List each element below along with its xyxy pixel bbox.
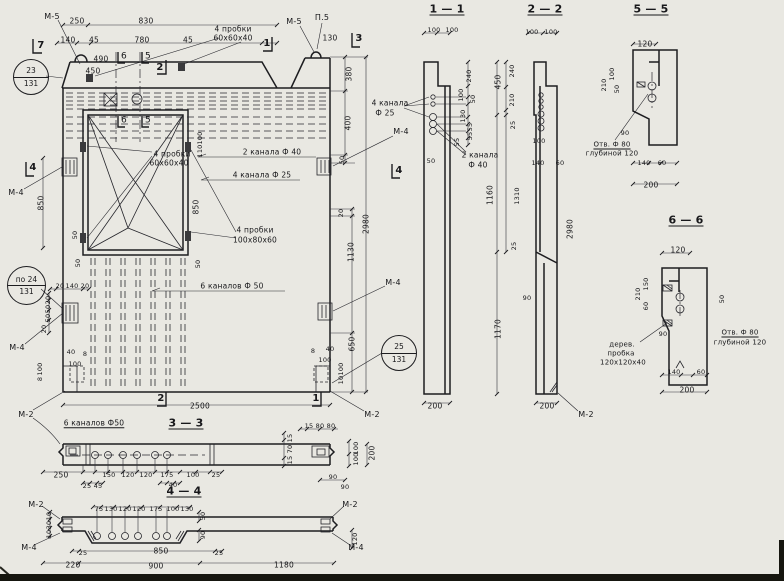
- cut-mark-6-win: 6: [121, 117, 127, 126]
- section-title-5-5: 5 — 5: [634, 4, 669, 15]
- dim-label: Ф 25: [375, 109, 394, 117]
- dim-label: 240: [509, 64, 516, 77]
- dim-label: 175: [160, 472, 173, 479]
- cut-mark-5-top: 5: [145, 53, 151, 62]
- note-plugs-window: 4 пробки: [153, 150, 190, 158]
- dim-label: 8: [37, 377, 44, 381]
- mark-m4-44-left: М-4: [21, 544, 36, 552]
- dim-label: 100: [338, 362, 345, 375]
- dim-label: 850: [192, 200, 200, 215]
- drawing-sheet: М-57250830140457804549045065214 пробки60…: [0, 0, 784, 581]
- dim-label: 10: [338, 376, 345, 385]
- note-plugs-100: 4 пробки: [236, 226, 273, 234]
- note-wood-plug: дерев.: [609, 342, 634, 349]
- dim-label: 220: [66, 561, 81, 569]
- dim-label: 1170: [494, 319, 502, 339]
- section-title-1-1: 1 — 1: [430, 4, 465, 15]
- dim-label: 850: [37, 196, 45, 211]
- mark-p5: П.5: [315, 14, 329, 22]
- dim-label: 25: [212, 472, 221, 479]
- dim-label: 850: [154, 547, 169, 555]
- dim-label: 100: [544, 29, 557, 36]
- dim-label: 210: [635, 287, 642, 300]
- leader-lines: [24, 20, 667, 545]
- note-2-channels-f40: 2 канала: [462, 151, 499, 159]
- dim-label: 200: [368, 446, 376, 461]
- dim-label: 450: [494, 75, 502, 90]
- dim-label: 20: [338, 209, 345, 218]
- callout-top: 23: [14, 65, 48, 78]
- dim-label: 650: [348, 337, 356, 352]
- callout-detail-25: 25 131: [381, 335, 417, 371]
- dim-label: 490: [94, 55, 109, 63]
- callout-bottom: 131: [382, 354, 416, 366]
- dim-label: 100х80х60: [233, 236, 277, 244]
- dim-label: 55: [454, 138, 461, 147]
- dim-label: 130: [460, 109, 467, 122]
- dim-label: 8: [311, 348, 315, 355]
- dim-label: 120: [139, 472, 152, 479]
- dim-label: 20: [81, 283, 90, 290]
- dim-label: глубиной 120: [586, 151, 639, 158]
- mark-m4-left-top: М-4: [8, 189, 23, 197]
- dim-label: 50: [427, 158, 436, 165]
- dim-label: 210: [509, 93, 516, 106]
- dim-label: 120: [671, 246, 686, 254]
- note-plugs-top: 4 пробки: [214, 25, 251, 33]
- dim-label: 100: [458, 88, 465, 101]
- dim-label: 25: [215, 550, 224, 557]
- dim-label: 100: [166, 506, 179, 513]
- dim-label: 900: [149, 562, 164, 570]
- dim-label: 100: [445, 27, 458, 34]
- dim-label: 60: [643, 302, 650, 311]
- dim-label: 50: [614, 85, 621, 94]
- dim-label: 200: [680, 386, 695, 394]
- dim-label: 50: [200, 512, 207, 521]
- cut-mark-1-top: 1: [263, 39, 270, 49]
- dim-label: 100: [68, 361, 81, 368]
- dim-label: 25: [511, 242, 518, 251]
- dim-label: 50: [339, 156, 346, 165]
- dim-label: 50: [195, 260, 202, 269]
- dim-label: 90: [329, 474, 338, 481]
- section-title-2-2: 2 — 2: [528, 4, 563, 15]
- mark-m4-right-top: М-4: [393, 128, 408, 136]
- dim-label: 380: [345, 67, 353, 82]
- section-2-2-outline: [534, 62, 557, 394]
- dim-label: 15: [305, 423, 314, 430]
- dim-label: 120: [118, 506, 131, 513]
- mark-m4-left-bot: М-4: [9, 344, 24, 352]
- dim-label: 100: [318, 357, 331, 364]
- dim-label: 140: [637, 160, 650, 167]
- dim-label: 100: [186, 472, 199, 479]
- dim-label: 2980: [362, 214, 370, 234]
- dim-label: 60: [658, 160, 667, 167]
- dim-label: 10: [46, 512, 53, 521]
- note-channels-f50: 6 каналов Ф 50: [200, 282, 263, 290]
- dim-label: 55: [467, 123, 474, 132]
- note-channels-f40: 2 канала Ф 40: [243, 148, 302, 156]
- dim-label: 20: [45, 296, 52, 305]
- dim-label: 120: [132, 506, 145, 513]
- mark-m2-sec2: М-2: [578, 411, 593, 419]
- mark-m2-left: М-2: [18, 411, 33, 419]
- cut-mark-1-bot: 1: [312, 394, 319, 404]
- dim-label: 1180: [274, 561, 294, 569]
- dim-label: 130: [323, 34, 338, 42]
- mark-m2-44-left: М-2: [28, 501, 43, 509]
- dim-label: 60х60х40: [213, 34, 252, 42]
- dim-label: 100: [37, 362, 44, 375]
- cut-mark-2-top: 2: [156, 63, 163, 73]
- dim-label: 100: [427, 27, 440, 34]
- section-5-5-outline: [633, 50, 677, 145]
- dim-label: 50: [719, 295, 726, 304]
- cut-mark-7: 7: [37, 41, 44, 51]
- mark-m4-right-mid: М-4: [385, 279, 400, 287]
- callout-top: по 24: [8, 274, 45, 287]
- dim-label: 200: [428, 402, 443, 410]
- dim-label: 175: [149, 506, 162, 513]
- dim-label: 1130: [347, 242, 355, 262]
- cut-mark-2-bot: 2: [157, 394, 164, 404]
- dim-label: 55: [467, 132, 474, 141]
- dim-label: 100: [609, 67, 616, 80]
- dim-label: 20: [56, 283, 65, 290]
- cut-mark-4-left: 4: [29, 163, 36, 173]
- dim-label: 2980: [566, 219, 574, 239]
- dim-label: 100: [353, 452, 360, 465]
- dim-label: 140: [667, 369, 680, 376]
- dim-label: 30: [46, 521, 53, 530]
- dim-label: 60: [697, 369, 706, 376]
- dim-label: 60х60х40: [149, 159, 188, 167]
- dim-label: глубиной 120: [714, 340, 767, 347]
- dim-label: 110: [197, 144, 204, 157]
- dim-label: 90: [621, 130, 630, 137]
- mark-m5-right: М-5: [286, 18, 301, 26]
- mark-m2-right: М-2: [364, 411, 379, 419]
- lifting-loops: [75, 52, 321, 62]
- note-hole-6-6: Отв. Ф 80: [721, 330, 758, 337]
- dim-label: 25: [79, 550, 88, 557]
- mark-m5-left: М-5: [44, 13, 59, 21]
- dim-label: 45: [94, 483, 103, 490]
- dim-label: 150: [102, 472, 115, 479]
- window-cross-lines: [88, 115, 183, 250]
- mark-m2-44-right: М-2: [342, 501, 357, 509]
- dim-label: 200: [644, 181, 659, 189]
- callout-top: 25: [382, 341, 416, 354]
- dim-label: 90: [523, 295, 532, 302]
- dim-label: 90: [200, 531, 207, 540]
- dim-label: 80: [327, 423, 336, 430]
- dim-label: 140: [61, 36, 76, 44]
- dim-label: 8: [83, 351, 87, 358]
- dim-label: 15: [287, 456, 294, 465]
- callout-bottom: 131: [8, 286, 45, 298]
- dim-label: 90: [659, 331, 668, 338]
- dim-label: 2500: [190, 402, 210, 410]
- dim-label: 1310: [514, 187, 521, 204]
- note-hole-5-5: Отв. Ф 80: [593, 142, 630, 149]
- dim-label: 1160: [486, 185, 494, 205]
- note-4-channels-f25: 4 канала: [372, 99, 409, 107]
- dim-label: пробка: [607, 351, 634, 358]
- callout-detail-24: по 24 131: [7, 266, 46, 305]
- dim-label: 25: [510, 121, 517, 130]
- dim-label: 120х120х40: [600, 360, 646, 367]
- dim-label: 80: [316, 423, 325, 430]
- drawing-linework: [0, 0, 784, 581]
- dim-label: 140: [531, 160, 544, 167]
- dim-label: 50: [72, 231, 79, 240]
- dim-label: 45: [183, 36, 193, 44]
- section-title-3-3: 3 — 3: [169, 418, 204, 429]
- dim-label: 70: [287, 445, 294, 454]
- dim-label: 780: [135, 36, 150, 44]
- dim-label: 50: [45, 305, 52, 314]
- dim-label: 45: [89, 36, 99, 44]
- section-1-1-outline: [424, 62, 450, 394]
- cut-mark-6-top: 6: [121, 53, 127, 62]
- dim-label: 75: [95, 506, 104, 513]
- dim-label: 130: [180, 506, 193, 513]
- dim-label: 130: [104, 506, 117, 513]
- callout-bottom: 131: [14, 78, 48, 90]
- section-title-6-6: 6 — 6: [669, 215, 704, 226]
- section-4-4-outline: [58, 517, 337, 543]
- dim-label: 100: [532, 138, 545, 145]
- dim-label: 50: [45, 314, 52, 323]
- dim-label: 450: [86, 67, 101, 75]
- cut-mark-5-win: 5: [145, 117, 151, 126]
- dim-label: 200: [540, 402, 555, 410]
- dim-label: 50: [470, 95, 477, 104]
- dim-label: Ф 40: [468, 161, 487, 169]
- dim-label: 25: [83, 483, 92, 490]
- dim-label: 150: [643, 277, 650, 290]
- dim-label: 250: [54, 471, 69, 479]
- dim-label: 20: [41, 325, 48, 334]
- dim-label: 120: [121, 472, 134, 479]
- mark-m4-44-right: М-4: [348, 544, 363, 552]
- dim-label: 250: [70, 17, 85, 25]
- note-6-channels: 6 каналов Ф50: [64, 419, 125, 427]
- dim-label: 40: [326, 346, 335, 353]
- dim-label: 100: [197, 131, 204, 144]
- dim-label: 60: [556, 160, 565, 167]
- cut-mark-3: 3: [355, 34, 362, 44]
- dim-label: 400: [344, 116, 352, 131]
- dim-label: 210: [601, 78, 608, 91]
- cut-mark-4-right: 4: [395, 166, 402, 176]
- dim-label: 100: [525, 29, 538, 36]
- dim-label: 10: [46, 530, 53, 539]
- dim-label: 40: [67, 349, 76, 356]
- dim-label: 120: [638, 40, 653, 48]
- callout-detail-23: 23 131: [13, 59, 49, 95]
- note-channels-f25: 4 канала Ф 25: [233, 171, 292, 179]
- dim-label: 15: [287, 434, 294, 443]
- dim-label: 140: [65, 283, 78, 290]
- dim-label: 90: [341, 484, 350, 491]
- scan-border-bottom: [0, 574, 784, 581]
- section-title-4-4: 4 — 4: [167, 486, 202, 497]
- dim-label: 830: [139, 17, 154, 25]
- dim-label: 50: [75, 259, 82, 268]
- dim-label: 240: [466, 69, 473, 82]
- scan-border-right: [779, 540, 784, 581]
